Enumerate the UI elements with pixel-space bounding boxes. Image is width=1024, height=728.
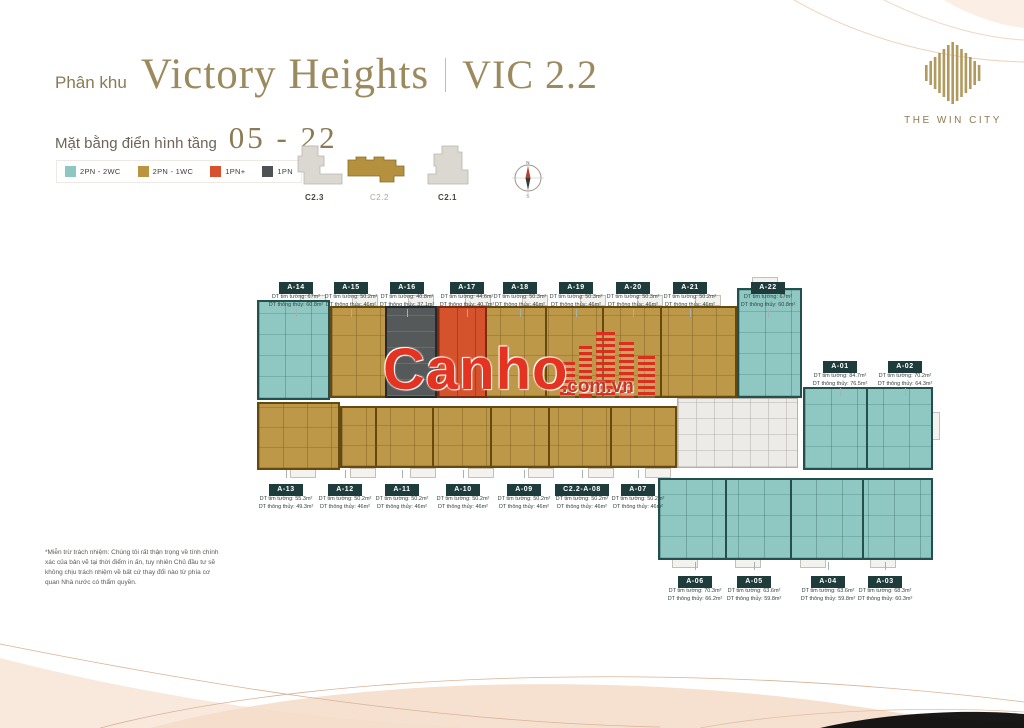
unit-area-clear: DT thông thủy: 60.8m² [733,302,803,310]
unit-area-wall: DT tim tường: 50.2m² [603,496,673,504]
unit-label: A-02 DT tim tường: 70.2m² DT thông thủy:… [870,355,940,388]
unit-area-wall: DT tim tường: 50.2m² [428,496,498,504]
unit-id: C2.2-A-08 [555,484,609,496]
unit-id: A-03 [868,576,902,588]
unit-area-clear: DT thông thủy: 46m² [367,504,437,512]
unit-area-wall: DT tim tường: 68.3m² [850,588,920,596]
unit-label: A-07 DT tim tường: 50.2m² DT thông thủy:… [603,478,673,511]
unit-label: A-10 DT tim tường: 50.2m² DT thông thủy:… [428,478,498,511]
unit-area-wall: DT tim tường: 67m² [733,294,803,302]
unit-id: A-09 [507,484,541,496]
unit-area-clear: DT thông thủy: 59.8m² [719,596,789,604]
unit-label: A-11 DT tim tường: 50.2m² DT thông thủy:… [367,478,437,511]
unit-label: A-22 DT tim tường: 67m² DT thông thủy: 6… [733,276,803,309]
unit-id: A-04 [811,576,845,588]
unit-area-wall: DT tim tường: 84.7m² [805,373,875,381]
unit-id: A-21 [673,282,707,294]
disclaimer-text: *Miễn trừ trách nhiệm: Chúng tôi rất thậ… [45,548,221,588]
unit-id: A-16 [390,282,424,294]
unit-id: A-01 [823,361,857,373]
unit-id: A-12 [328,484,362,496]
unit-label: A-21 DT tim tường: 50.2m² DT thông thủy:… [655,276,725,309]
unit-id: A-10 [446,484,480,496]
unit-id: A-05 [737,576,771,588]
unit-label: A-01 DT tim tường: 84.7m² DT thông thủy:… [805,355,875,388]
unit-area-clear: DT thông thủy: 46m² [655,302,725,310]
unit-area-wall: DT tim tường: 50.2m² [655,294,725,302]
unit-area-clear: DT thông thủy: 46m² [428,504,498,512]
unit-label: A-03 DT tim tường: 68.3m² DT thông thủy:… [850,570,920,603]
unit-label: A-05 DT tim tường: 63.6m² DT thông thủy:… [719,570,789,603]
unit-area-clear: DT thông thủy: 76.5m² [805,381,875,389]
unit-id: A-13 [269,484,303,496]
unit-area-clear: DT thông thủy: 60.3m² [850,596,920,604]
unit-id: A-18 [503,282,537,294]
unit-id: A-20 [616,282,650,294]
unit-id: A-15 [334,282,368,294]
unit-id: A-11 [385,484,418,496]
unit-area-clear: DT thông thủy: 64.3m² [870,381,940,389]
unit-area-wall: DT tim tường: 63.6m² [719,588,789,596]
unit-id: A-19 [559,282,593,294]
unit-id: A-02 [888,361,922,373]
unit-id: A-07 [621,484,655,496]
unit-id: A-17 [450,282,484,294]
unit-area-clear: DT thông thủy: 46m² [603,504,673,512]
unit-id: A-14 [279,282,313,294]
unit-id: A-22 [751,282,785,294]
brochure-page: Phân khu Victory Heights VIC 2.2 Mặt bằn… [0,0,1024,728]
unit-id: A-06 [678,576,712,588]
unit-area-wall: DT tim tường: 70.2m² [870,373,940,381]
unit-area-wall: DT tim tường: 50.2m² [367,496,437,504]
unit-labels: A-14 DT tim tường: 67m² DT thông thủy: 6… [0,0,1024,728]
